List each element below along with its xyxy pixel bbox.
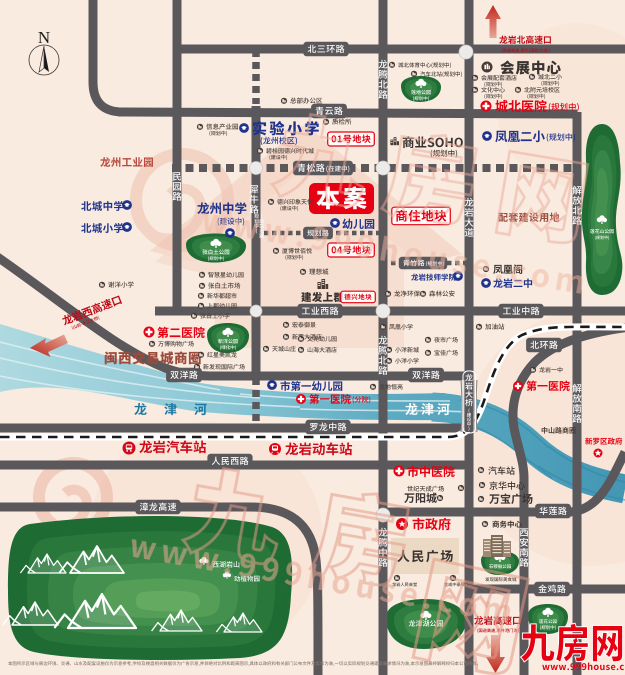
svg-text:N: N [38,28,50,47]
